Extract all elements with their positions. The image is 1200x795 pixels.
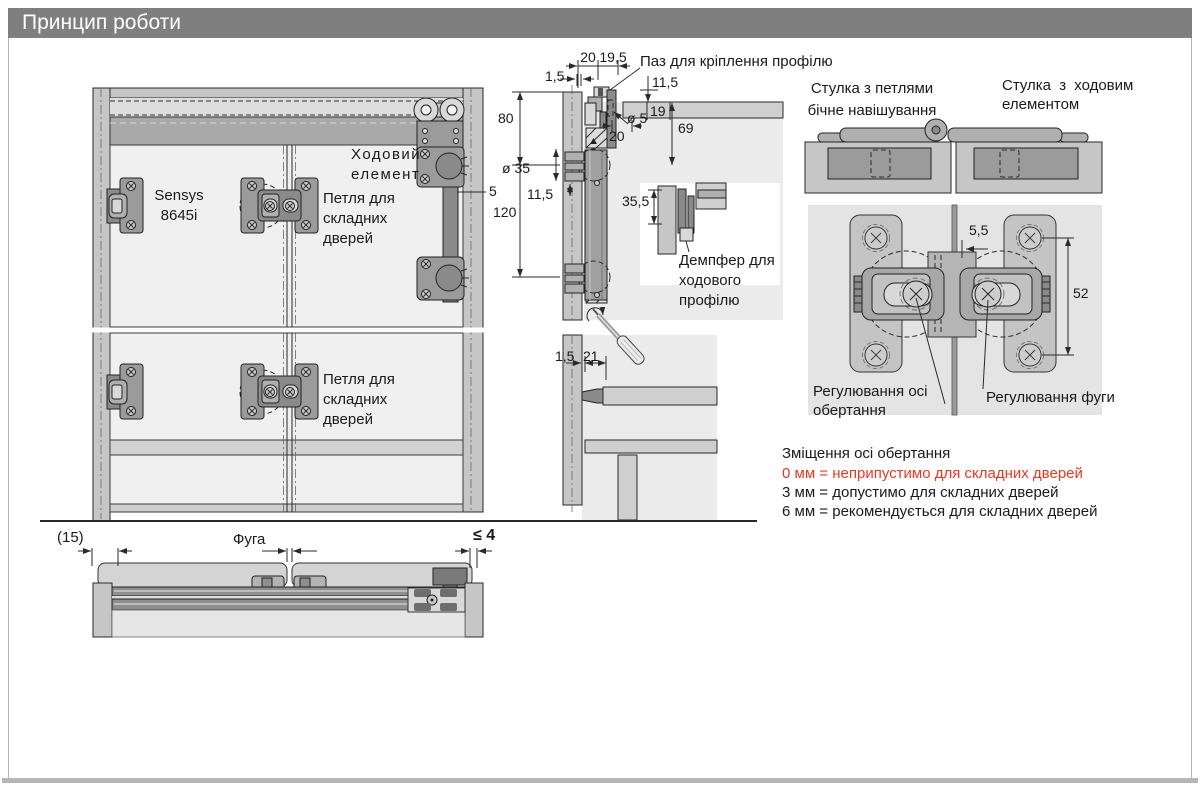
cabinet-left-stile (93, 88, 110, 521)
dim-front-20: 20 (609, 129, 625, 144)
dim-left-11-5: 11,5 (527, 187, 553, 202)
offset-heading: Зміщення осі обертання (782, 444, 950, 464)
front-view-drawing (86, 88, 486, 521)
damper-label: Демпфер для ходового профілю (679, 251, 775, 311)
dim-bottom-21: 21 (583, 349, 599, 364)
groove-leader (610, 68, 640, 90)
leaf-runner-label: Стулка з ходовим елементом (1002, 76, 1133, 114)
fuga-label: Фуга (233, 530, 265, 550)
offset-rule-6mm: 6 мм = рекомендується для складних двере… (782, 502, 1097, 522)
leaf-hinges-label: Стулка з петлями бічне навішування (797, 78, 947, 122)
dim-52: 52 (1073, 286, 1089, 301)
dim-5-5: 5,5 (969, 223, 988, 238)
dim-top-1-5: 1,5 (545, 69, 564, 84)
offset-rule-0mm: 0 мм = неприпустимо для складних дверей (782, 464, 1083, 484)
dim-inset-35-5: 35,5 (622, 194, 649, 209)
dim-left-80: 80 (498, 111, 514, 126)
dim-top-19-5: 19,5 (597, 50, 629, 65)
bottom-view-drawing (78, 548, 492, 637)
folding-hinge-label-upper: Петля для складних дверей (323, 189, 395, 249)
damper-block (680, 228, 693, 241)
hinge-section-view (805, 119, 1102, 193)
offset-rule-3mm: 3 мм = допустимо для складних дверей (782, 483, 1059, 503)
dim-bottom-1-5: 1,5 (555, 349, 574, 364)
bottom-roller-carriage (408, 588, 465, 612)
dim-15: (15) (57, 528, 84, 548)
fixing-block-top (586, 128, 607, 148)
adjustment-pin (582, 389, 603, 403)
dim-max-4: ≤ 4 (473, 526, 495, 546)
door-edge-section (603, 387, 717, 405)
dim-left-120: 120 (493, 205, 516, 220)
dim-hole-dia-5: ø 5 (627, 111, 647, 126)
gap-adjust-label: Регулювання фуги (986, 388, 1115, 408)
groove-label: Паз для кріплення профілю (640, 52, 833, 72)
cabinet-right-stile (463, 88, 483, 512)
running-element-label: Ходовий елемент (351, 145, 421, 185)
dim-panel-19: 19 (650, 104, 666, 119)
dim-cup-dia-35: ø 35 (502, 161, 530, 176)
dim-fuga-lines (262, 548, 317, 562)
folding-hinge-label-lower: Петля для складних дверей (323, 370, 395, 430)
sensys-model-label: Sensys 8645i (150, 186, 208, 226)
running-track (110, 117, 463, 145)
dim-5: 5 (489, 184, 497, 199)
axis-adjust-label: Регулювання осі обертання (813, 382, 928, 420)
diagram-page: Принцип роботи (0, 0, 1200, 795)
door-panel-section (585, 150, 607, 300)
dim-80-120-lines (512, 92, 563, 277)
running-element-top-view (433, 568, 467, 585)
dim-top-20: 20 (577, 50, 599, 65)
dim-panel-69: 69 (678, 121, 694, 136)
dim-top-11-5: 11,5 (652, 75, 678, 90)
